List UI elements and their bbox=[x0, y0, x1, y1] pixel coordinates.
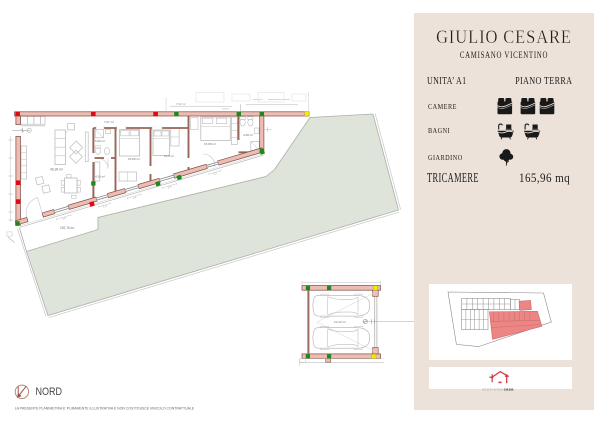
svg-text:7,02 m²: 7,02 m² bbox=[176, 102, 186, 106]
svg-text:4,28 m²: 4,28 m² bbox=[243, 133, 253, 137]
svg-text:192,76 m²: 192,76 m² bbox=[60, 226, 74, 230]
svg-text:NORD: NORD bbox=[36, 386, 63, 398]
svg-text:15,89 m²: 15,89 m² bbox=[128, 157, 140, 161]
svg-text:10,5 m²: 10,5 m² bbox=[164, 154, 174, 158]
svg-text:15,98 m²: 15,98 m² bbox=[204, 142, 216, 146]
svg-text:21,63 m²: 21,63 m² bbox=[334, 320, 346, 324]
svg-text:casa: casa bbox=[504, 387, 515, 392]
svg-text:46,39 m²: 46,39 m² bbox=[50, 168, 64, 172]
svg-text:7,07 m²: 7,07 m² bbox=[104, 120, 114, 124]
svg-text:5,69 m²: 5,69 m² bbox=[95, 139, 105, 143]
svg-text:4,26 m²: 4,26 m² bbox=[95, 174, 105, 178]
svg-text:distretto: distretto bbox=[482, 387, 503, 392]
svg-text:LA PRESENTE PLANIMETRIA E’ PUR: LA PRESENTE PLANIMETRIA E’ PURAMENTE ILL… bbox=[15, 405, 195, 410]
